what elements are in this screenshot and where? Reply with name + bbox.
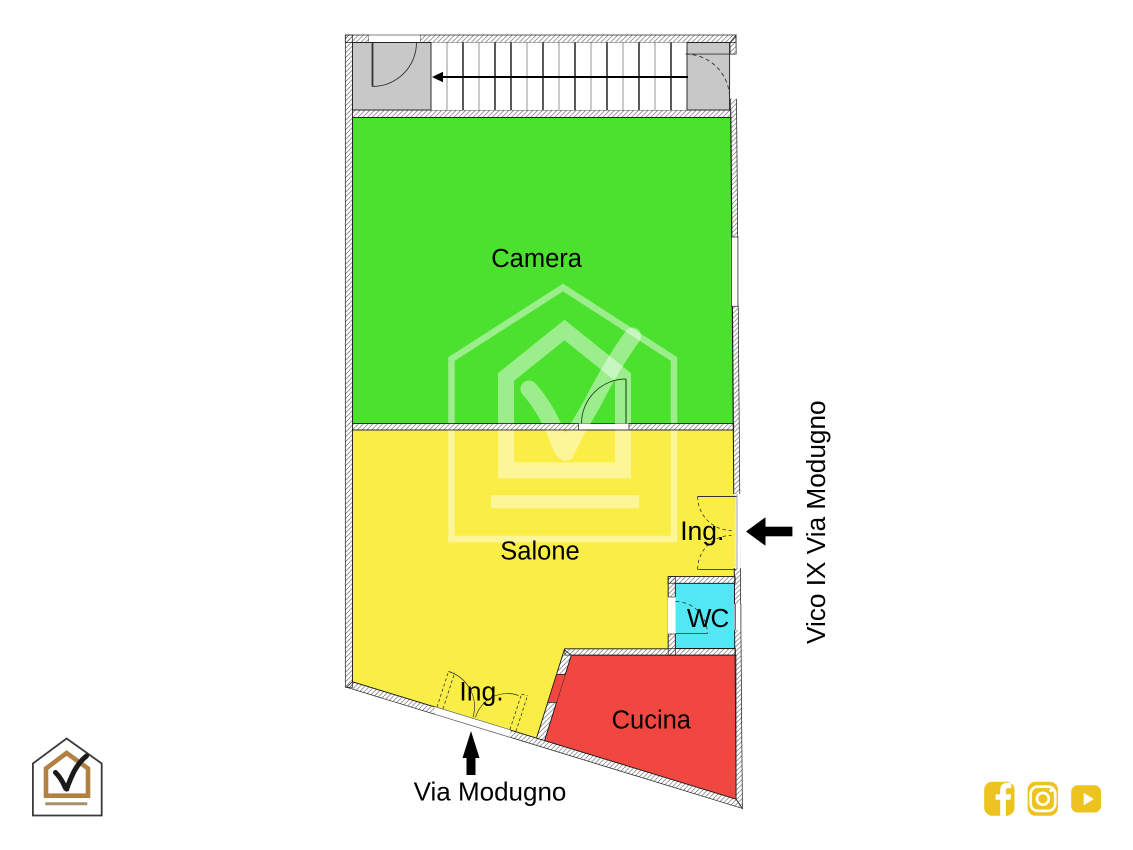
svg-text:WC: WC [687, 603, 729, 633]
svg-text:Salone: Salone [500, 538, 579, 566]
svg-text:Cucina: Cucina [612, 707, 692, 735]
svg-text:Ing.: Ing. [459, 677, 503, 707]
svg-text:Camera: Camera [491, 245, 583, 273]
svg-text:Ing.: Ing. [680, 516, 724, 546]
svg-text:Via Modugno: Via Modugno [414, 777, 567, 807]
svg-text:Vico IX Via Modugno: Vico IX Via Modugno [801, 400, 831, 644]
